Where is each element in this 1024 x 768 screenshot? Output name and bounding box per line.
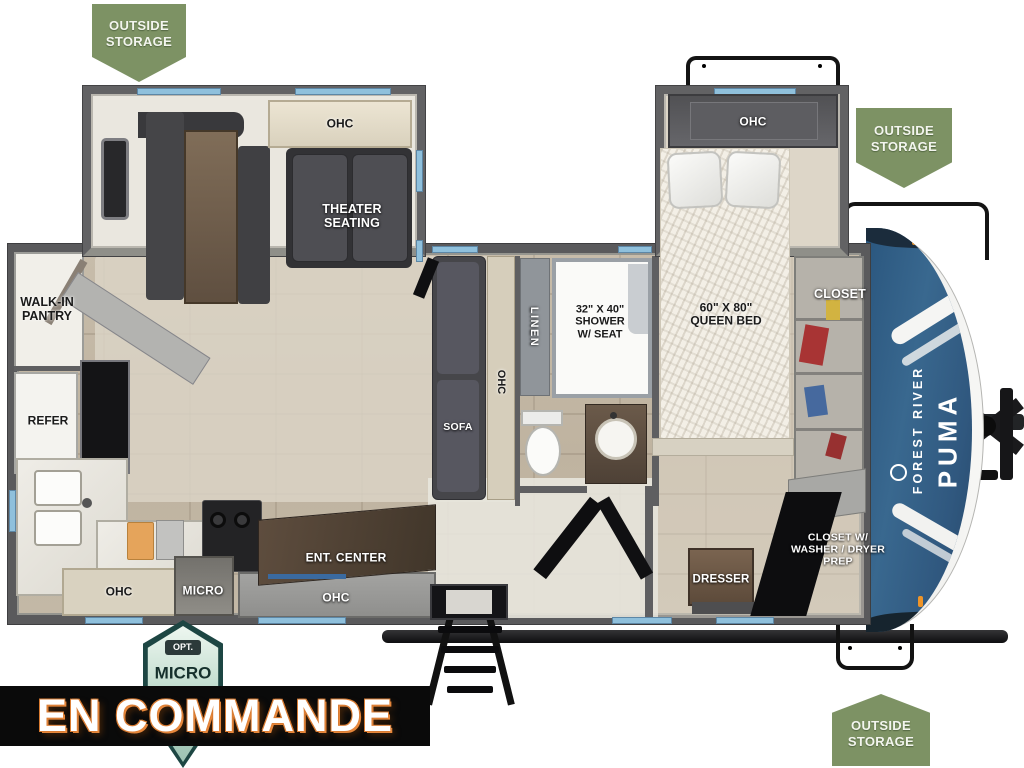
- window: [258, 617, 346, 624]
- label-ohc-dinette: OHC: [327, 117, 354, 130]
- kitchen-sink: [34, 470, 82, 506]
- label-ohc-bedroom: OHC: [739, 115, 766, 128]
- closet-item: [804, 385, 828, 417]
- outside-storage-badge-right: OUTSIDE STORAGE: [856, 108, 952, 188]
- toilet-tank: [521, 410, 563, 426]
- pillow: [667, 151, 724, 210]
- outside-storage-badge-top: OUTSIDE STORAGE: [92, 4, 186, 82]
- front-cap: FOREST RIVER PUMA: [866, 228, 972, 632]
- label-shower: 32" X 40" SHOWER W/ SEAT: [575, 304, 625, 341]
- refrigerator: [80, 360, 130, 474]
- step-tread: [444, 666, 496, 673]
- bracket-bolt: [818, 64, 822, 68]
- ohc-blue-trim: [268, 574, 346, 579]
- sofa-cushion: [437, 262, 479, 374]
- brand-manufacturer: FOREST RIVER: [911, 366, 925, 494]
- brand-model: PUMA: [933, 392, 962, 489]
- faucet: [82, 498, 92, 508]
- vanity-sink: [595, 418, 637, 460]
- bracket-bolt: [898, 646, 902, 650]
- dinette-bench: [238, 146, 270, 304]
- cutting-board: [127, 522, 154, 560]
- outside-storage-label: OUTSIDE STORAGE: [848, 718, 914, 766]
- dinette-table: [184, 130, 238, 304]
- closet-item: [826, 300, 840, 320]
- cap-bottom-band: [866, 609, 969, 632]
- opt-micro-label: MICRO: [155, 663, 212, 682]
- window: [416, 240, 423, 262]
- label-ohc-sofa: OHC: [495, 370, 507, 394]
- window: [618, 246, 652, 253]
- pillow: [725, 151, 782, 210]
- outside-storage-label: OUTSIDE STORAGE: [871, 123, 937, 188]
- label-theater-seating: THEATER SEATING: [322, 202, 382, 230]
- label-closet: CLOSET: [814, 287, 866, 301]
- outside-storage-label: OUTSIDE STORAGE: [106, 18, 172, 82]
- window: [9, 490, 16, 532]
- window: [416, 150, 423, 192]
- label-ohc-kitchen-left: OHC: [106, 585, 133, 598]
- bed-platform: [652, 438, 794, 456]
- vanity-faucet: [610, 412, 617, 419]
- bathroom-wall-bottom: [515, 486, 587, 493]
- bathroom-wall-right: [652, 256, 659, 506]
- window: [85, 617, 143, 624]
- bracket-bolt: [848, 646, 852, 650]
- sink-grate: [156, 520, 184, 560]
- entry-threshold: [446, 590, 492, 614]
- sofa-cushion: [437, 380, 479, 492]
- window: [137, 88, 221, 95]
- label-closet-washer-dryer: CLOSET W/ WASHER / DRYER PREP: [791, 532, 885, 567]
- dinette-bench: [146, 112, 184, 300]
- bracket-bolt: [702, 64, 706, 68]
- label-sofa: SOFA: [443, 422, 472, 434]
- toilet: [525, 426, 561, 476]
- step-tread: [441, 646, 499, 653]
- brand-emblem: [890, 464, 907, 481]
- window: [295, 88, 391, 95]
- step-tread: [438, 626, 502, 633]
- hitch-post: [1000, 388, 1013, 480]
- burner: [234, 512, 250, 528]
- pantry-wall: [14, 366, 84, 371]
- label-queen-bed: 60" X 80" QUEEN BED: [690, 302, 761, 329]
- closet-shelf: [796, 372, 862, 375]
- label-refer: REFER: [28, 414, 69, 427]
- label-ohc-kitchen-center: OHC: [322, 591, 349, 604]
- opt-tag: OPT.: [165, 640, 201, 655]
- status-banner: EN COMMANDE: [0, 686, 430, 746]
- label-linen: LINEN: [528, 307, 540, 348]
- closet-shelf: [796, 428, 862, 431]
- label-ent-center: ENT. CENTER: [306, 551, 387, 564]
- hall-wall: [645, 486, 653, 624]
- label-dresser: DRESSER: [693, 574, 750, 587]
- slide-side-window: [101, 138, 129, 220]
- label-walk-in-pantry: WALK-IN PANTRY: [20, 295, 73, 323]
- shower-seat: [628, 264, 648, 334]
- window: [612, 617, 672, 624]
- window: [716, 617, 774, 624]
- status-banner-label: EN COMMANDE: [37, 690, 393, 742]
- label-micro: MICRO: [183, 584, 224, 597]
- cap-swoosh: [888, 258, 972, 348]
- burner: [210, 512, 226, 528]
- step-tread: [447, 686, 493, 693]
- rv-floorplan-image: FOREST RIVER PUMA: [0, 0, 1024, 768]
- kitchen-sink: [34, 510, 82, 546]
- outside-storage-badge-bottom: OUTSIDE STORAGE: [832, 694, 930, 766]
- clearance-light: [912, 234, 917, 245]
- window: [432, 246, 478, 253]
- clearance-light: [918, 596, 923, 607]
